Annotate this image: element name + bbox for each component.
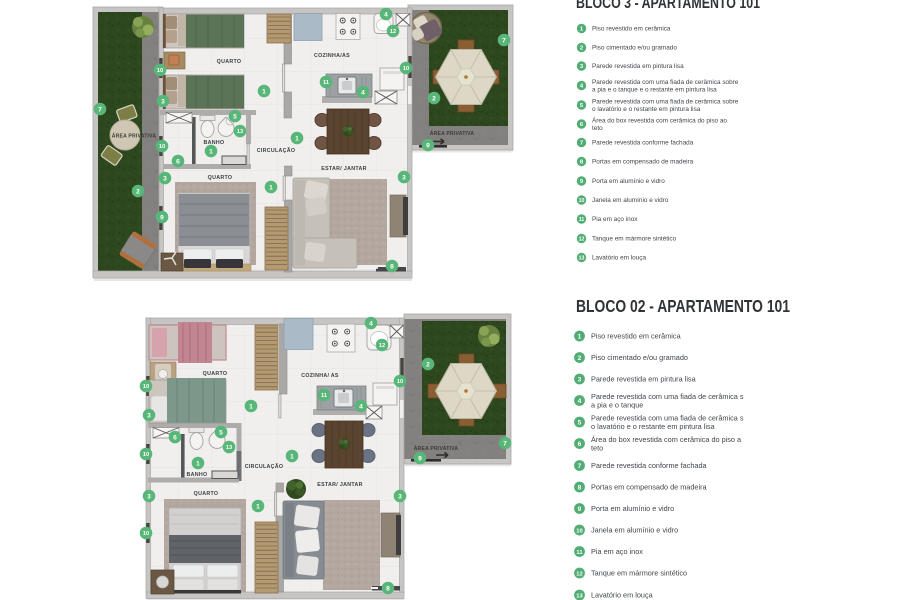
svg-text:5: 5 xyxy=(233,113,237,120)
svg-text:Porta em alumínio e vidro: Porta em alumínio e vidro xyxy=(592,178,665,185)
svg-text:10: 10 xyxy=(143,452,149,458)
svg-text:11: 11 xyxy=(323,80,329,86)
svg-text:10: 10 xyxy=(397,379,403,385)
svg-text:10: 10 xyxy=(579,198,585,204)
svg-text:13: 13 xyxy=(226,445,232,451)
svg-text:6: 6 xyxy=(173,434,177,441)
svg-text:ÁREA PRIVATIVA: ÁREA PRIVATIVA xyxy=(112,133,157,140)
svg-text:12: 12 xyxy=(579,237,585,243)
svg-text:11: 11 xyxy=(576,550,583,556)
svg-text:7: 7 xyxy=(578,463,582,470)
svg-text:3: 3 xyxy=(147,493,151,500)
svg-text:9: 9 xyxy=(418,455,422,462)
svg-text:QUARTO: QUARTO xyxy=(217,59,242,65)
svg-text:12: 12 xyxy=(576,571,582,577)
svg-text:CIRCULAÇÃO: CIRCULAÇÃO xyxy=(257,147,296,154)
svg-text:QUARTO: QUARTO xyxy=(194,491,219,497)
svg-text:4: 4 xyxy=(359,403,363,410)
svg-text:o lavatório e o restante em pi: o lavatório e o restante em pintura lisa xyxy=(592,106,701,113)
svg-text:3: 3 xyxy=(578,376,582,383)
svg-text:11: 11 xyxy=(579,217,585,223)
svg-text:7: 7 xyxy=(503,440,507,447)
svg-text:9: 9 xyxy=(578,506,582,513)
svg-text:12: 12 xyxy=(379,343,385,349)
svg-text:BLOCO 02 - APARTAMENTO 101: BLOCO 02 - APARTAMENTO 101 xyxy=(576,296,790,316)
svg-text:4: 4 xyxy=(384,11,388,18)
svg-text:3: 3 xyxy=(147,412,151,419)
svg-text:BANHO: BANHO xyxy=(204,140,225,146)
svg-text:teto: teto xyxy=(591,443,603,452)
svg-text:8: 8 xyxy=(386,585,390,592)
svg-text:Piso revestido em cerâmica: Piso revestido em cerâmica xyxy=(592,26,671,33)
svg-text:BLOCO 3 - APARTAMENTO 101: BLOCO 3 - APARTAMENTO 101 xyxy=(576,0,760,12)
svg-text:Área do box revestida com cerâ: Área do box revestida com cerâmica do pi… xyxy=(592,116,727,125)
svg-text:Parede revestida em pintura li: Parede revestida em pintura lisa xyxy=(592,63,684,70)
svg-text:BANHO: BANHO xyxy=(187,472,208,478)
svg-text:QUARTO: QUARTO xyxy=(208,175,233,181)
svg-text:CIRCULAÇÃO: CIRCULAÇÃO xyxy=(245,463,284,470)
svg-text:Janela em alumínio e vidro: Janela em alumínio e vidro xyxy=(592,197,669,204)
svg-text:1: 1 xyxy=(256,503,260,510)
svg-text:Piso cimentado e/ou gramado: Piso cimentado e/ou gramado xyxy=(591,353,688,362)
svg-text:1: 1 xyxy=(295,135,299,142)
svg-text:ESTAR/ JANTAR: ESTAR/ JANTAR xyxy=(321,166,367,172)
svg-text:Portas em compensado de madeir: Portas em compensado de madeira xyxy=(591,483,708,492)
svg-text:5: 5 xyxy=(219,429,223,436)
svg-text:Pia em aço inox: Pia em aço inox xyxy=(591,547,643,556)
svg-text:3: 3 xyxy=(398,493,402,500)
svg-text:10: 10 xyxy=(576,528,582,534)
svg-text:ESTAR/ JANTAR: ESTAR/ JANTAR xyxy=(317,482,363,488)
svg-text:12: 12 xyxy=(390,29,396,35)
svg-text:1: 1 xyxy=(196,460,200,467)
svg-text:Parede revestida com uma fiada: Parede revestida com uma fiada de cerâmi… xyxy=(592,99,739,106)
svg-text:COZINHA/AS: COZINHA/AS xyxy=(314,53,350,59)
svg-text:Tanque em mármore sintético: Tanque em mármore sintético xyxy=(592,236,677,243)
svg-text:Pia em aço inox: Pia em aço inox xyxy=(592,216,638,223)
svg-text:1: 1 xyxy=(269,184,273,191)
svg-text:Parede revestida com uma fiada: Parede revestida com uma fiada de cerâmi… xyxy=(592,79,739,86)
svg-text:Lavatório em louça: Lavatório em louça xyxy=(591,591,654,600)
svg-text:10: 10 xyxy=(143,531,149,537)
svg-text:9: 9 xyxy=(426,142,430,149)
svg-text:Piso cimentado e/ou gramado: Piso cimentado e/ou gramado xyxy=(592,45,677,52)
svg-text:Portas em compensado de madeir: Portas em compensado de madeira xyxy=(592,159,694,166)
svg-text:3: 3 xyxy=(161,98,165,105)
svg-text:13: 13 xyxy=(579,256,585,262)
svg-text:o lavatório e o restante em pi: o lavatório e o restante em pintura lisa xyxy=(591,422,716,431)
svg-text:Piso revestido em cerâmica: Piso revestido em cerâmica xyxy=(591,332,682,341)
svg-text:1: 1 xyxy=(290,453,294,460)
svg-text:Parede revestida em pintura li: Parede revestida em pintura lisa xyxy=(591,375,697,384)
svg-text:QUARTO: QUARTO xyxy=(203,371,228,377)
svg-text:8: 8 xyxy=(578,484,582,491)
svg-text:10: 10 xyxy=(143,384,149,390)
svg-text:13: 13 xyxy=(576,593,583,599)
svg-text:1: 1 xyxy=(262,88,266,95)
svg-text:1: 1 xyxy=(249,403,253,410)
svg-text:4: 4 xyxy=(578,398,582,405)
svg-text:1: 1 xyxy=(209,148,213,155)
svg-text:10: 10 xyxy=(403,66,409,72)
svg-text:Parede revestida conforme fach: Parede revestida conforme fachada xyxy=(592,140,694,147)
svg-text:Janela em alumínio e vidro: Janela em alumínio e vidro xyxy=(591,526,678,535)
svg-text:Parede revestida conforme fach: Parede revestida conforme fachada xyxy=(591,461,708,470)
svg-text:ÁREA PRIVATIVA: ÁREA PRIVATIVA xyxy=(414,445,459,452)
svg-text:a pia e o tanque e o restante: a pia e o tanque e o restante em pintura… xyxy=(592,86,717,93)
svg-text:Lavatório em louça: Lavatório em louça xyxy=(592,255,646,262)
svg-text:6: 6 xyxy=(578,441,582,448)
svg-text:3: 3 xyxy=(402,174,406,181)
svg-text:10: 10 xyxy=(157,68,163,74)
svg-text:13: 13 xyxy=(237,129,243,135)
svg-text:Porta em alumínio e vidro: Porta em alumínio e vidro xyxy=(591,504,674,513)
svg-text:COZINHA/ AS: COZINHA/ AS xyxy=(301,373,339,379)
svg-text:Tanque em mármore sintético: Tanque em mármore sintético xyxy=(591,569,687,578)
svg-text:4: 4 xyxy=(361,89,365,96)
svg-text:1: 1 xyxy=(578,333,582,340)
svg-text:2: 2 xyxy=(578,355,582,362)
svg-text:7: 7 xyxy=(502,37,506,44)
svg-text:11: 11 xyxy=(321,393,327,399)
svg-text:5: 5 xyxy=(578,419,582,426)
svg-text:a pia e o tanque: a pia e o tanque xyxy=(591,400,643,409)
svg-text:6: 6 xyxy=(176,158,180,165)
svg-text:10: 10 xyxy=(159,144,165,150)
svg-text:9: 9 xyxy=(160,214,164,221)
svg-text:4: 4 xyxy=(369,320,373,327)
svg-text:2: 2 xyxy=(426,361,430,368)
svg-text:2: 2 xyxy=(136,188,140,195)
svg-text:ÁREA PRIVATIVA: ÁREA PRIVATIVA xyxy=(430,130,475,137)
svg-text:7: 7 xyxy=(98,106,102,113)
svg-text:8: 8 xyxy=(390,263,394,270)
svg-text:3: 3 xyxy=(163,175,167,182)
svg-text:2: 2 xyxy=(432,95,436,102)
svg-text:teto: teto xyxy=(592,125,603,132)
svg-text:Área do box revestida com cerâ: Área do box revestida com cerâmica do pi… xyxy=(591,435,742,444)
